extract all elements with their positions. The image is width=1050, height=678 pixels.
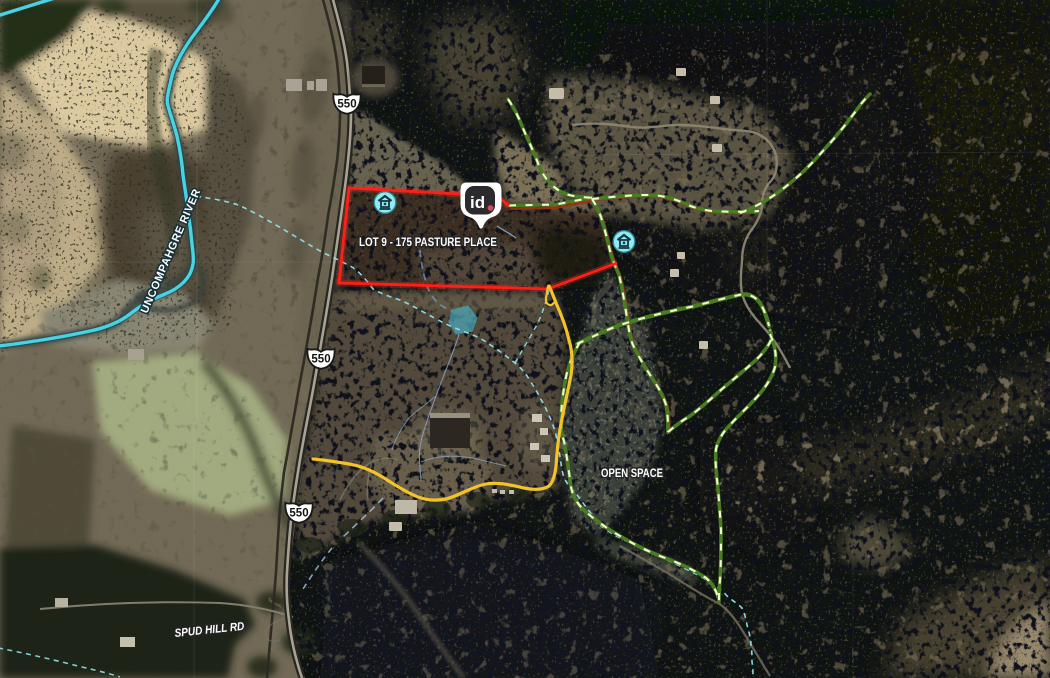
svg-text:id: id [470,193,485,212]
svg-text:OPEN SPACE: OPEN SPACE [601,466,663,480]
svg-text:550: 550 [311,354,330,366]
svg-text:550: 550 [337,99,356,111]
svg-text:550: 550 [289,508,308,520]
svg-text:LOT 9 - 175 PASTURE PLACE: LOT 9 - 175 PASTURE PLACE [359,235,497,249]
